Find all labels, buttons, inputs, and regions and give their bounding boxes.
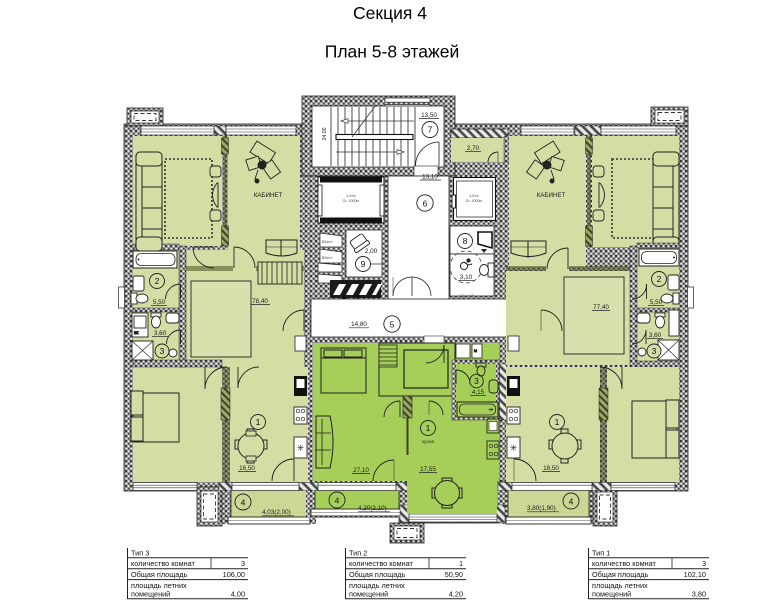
svg-text:4: 4 [335,495,340,505]
svg-text:4,20(2,10): 4,20(2,10) [358,505,387,512]
svg-text:1: 1 [459,559,463,568]
svg-text:G= 1000кг: G= 1000кг [466,199,483,203]
svg-text:✳: ✳ [297,443,305,453]
svg-text:102,10: 102,10 [684,570,706,579]
svg-text:М: М [474,349,477,353]
svg-text:кухня: кухня [422,440,435,445]
svg-text:+: + [488,407,492,414]
svg-text:2,70: 2,70 [467,145,480,152]
svg-text:2,00: 2,00 [365,248,378,255]
svg-text:4,00: 4,00 [231,590,245,599]
svg-text:4: 4 [569,496,574,506]
svg-text:2: 2 [155,276,160,286]
svg-text:3: 3 [241,559,245,568]
svg-text:78,40: 78,40 [252,298,268,305]
svg-text:Общая площадь: Общая площадь [349,570,406,579]
svg-text:6: 6 [423,198,428,208]
svg-text:План 5-8 этажей: План 5-8 этажей [325,42,460,62]
svg-text:14,80: 14,80 [351,321,367,328]
svg-text:4: 4 [241,497,246,507]
svg-text:ВЗэ/ст: ВЗэ/ст [322,240,333,244]
svg-text:1,0т/с: 1,0т/с [346,194,356,198]
svg-text:помещений: помещений [592,590,631,599]
svg-text:24.00: 24.00 [322,127,328,140]
svg-text:3: 3 [160,346,165,356]
svg-text:18,50: 18,50 [543,465,559,472]
svg-text:3,60: 3,60 [154,330,167,337]
svg-text:77,40: 77,40 [593,304,609,311]
svg-text:3: 3 [652,346,657,356]
svg-text:5,50: 5,50 [153,299,166,306]
svg-text:13,10: 13,10 [422,174,438,181]
svg-text:1,0т/с: 1,0т/с [469,194,479,198]
svg-text:4,15: 4,15 [472,389,485,396]
svg-text:помещений: помещений [349,590,388,599]
svg-text:Тип 3: Тип 3 [131,549,149,558]
svg-text:количество комнат: количество комнат [592,559,657,568]
svg-text:Тип 1: Тип 1 [592,549,610,558]
svg-text:Секция 4: Секция 4 [353,3,427,23]
svg-text:7: 7 [428,125,433,135]
svg-text:1: 1 [555,417,560,427]
svg-text:КАБИНЕТ: КАБИНЕТ [254,192,283,199]
svg-text:2: 2 [657,274,662,284]
svg-text:8: 8 [463,236,468,246]
svg-text:Тип 2: Тип 2 [349,549,367,558]
svg-text:3: 3 [474,376,479,386]
svg-text:G= 1000кг: G= 1000кг [343,199,360,203]
svg-text:5: 5 [390,319,395,329]
svg-text:✳: ✳ [510,443,518,453]
svg-text:помещений: помещений [131,590,170,599]
svg-text:16,50: 16,50 [239,465,255,472]
svg-text:3,60: 3,60 [649,332,662,339]
svg-text:ВЗэ/ст: ВЗэ/ст [322,256,333,260]
svg-text:5,50: 5,50 [650,299,663,306]
svg-text:106,00: 106,00 [223,570,245,579]
svg-text:4,03(2,00): 4,03(2,00) [262,509,291,516]
svg-text:3,10: 3,10 [460,274,473,281]
svg-text:50,90: 50,90 [445,570,463,579]
svg-text:17,55: 17,55 [420,466,436,473]
svg-text:27,10: 27,10 [353,467,369,474]
svg-text:количество комнат: количество комнат [349,559,414,568]
svg-text:3,80(1,90): 3,80(1,90) [527,505,556,512]
svg-text:3: 3 [702,559,706,568]
svg-text:КАБИНЕТ: КАБИНЕТ [537,192,566,199]
svg-text:Общая площадь: Общая площадь [131,570,188,579]
svg-text:СС-я Об: СС-я Об [460,294,474,298]
svg-text:количество комнат: количество комнат [131,559,196,568]
svg-text:Общая площадь: Общая площадь [592,570,649,579]
svg-text:13,50: 13,50 [421,112,437,119]
svg-text:1: 1 [256,417,261,427]
svg-text:3,80: 3,80 [692,590,706,599]
svg-text:9: 9 [361,259,366,269]
svg-text:4,20: 4,20 [449,590,463,599]
svg-text:1: 1 [426,423,431,433]
